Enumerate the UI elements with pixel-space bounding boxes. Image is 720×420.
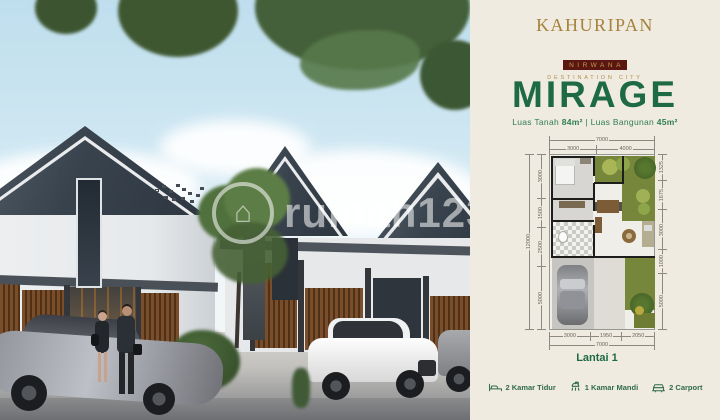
floor-plan: 7000 30004000 12000 3000150025005000 132…	[514, 136, 680, 376]
feature-label: 1 Kamar Mandi	[585, 383, 638, 392]
birds	[156, 190, 158, 191]
product-title: MIRAGE	[470, 74, 720, 116]
white-car	[300, 318, 450, 410]
feature-bedrooms: 2 Kamar Tidur	[488, 381, 556, 393]
car-windshield	[560, 279, 585, 289]
bed-icon	[488, 382, 503, 393]
floor-label: Lantai 1	[514, 352, 680, 364]
dining-table	[597, 200, 619, 213]
plan-dim-bottom-total: 7000	[549, 341, 655, 350]
plan-dim-top-segments: 30004000	[549, 145, 655, 154]
plan-dim-left-segments: 3000150025005000	[537, 154, 546, 330]
feature-label: 2 Kamar Tidur	[506, 383, 556, 392]
watermark: ⌂ rumah123	[212, 182, 470, 244]
wardrobe	[580, 158, 591, 164]
rumah123-logo-icon: ⌂	[212, 182, 274, 244]
feature-label: 2 Carport	[669, 383, 702, 392]
round-table	[622, 229, 636, 243]
watermark-text: rumah123	[284, 189, 470, 237]
property-render-image: ⌂ rumah123	[0, 0, 470, 420]
console-table	[595, 217, 602, 233]
car-icon	[651, 382, 666, 393]
product-specs: Luas Tanah 84m² | Luas Bangunan 45m²	[470, 117, 720, 127]
car-roof	[560, 291, 585, 309]
sink	[644, 225, 652, 231]
grass-patch	[634, 313, 655, 328]
desk	[559, 201, 585, 208]
specs-divider: |	[585, 117, 588, 127]
brochure: ⌂ rumah123 KAHURIPAN NIRWANA DESTINATION…	[0, 0, 720, 420]
building-label: Luas Bangunan	[591, 117, 654, 127]
chair	[619, 202, 622, 211]
palm-tree	[634, 157, 656, 179]
developer-logo: KAHURIPAN NIRWANA DESTINATION CITY	[470, 15, 720, 81]
brand-subname: NIRWANA	[563, 60, 627, 70]
feature-bathrooms: 1 Kamar Mandi	[569, 381, 638, 393]
bush	[636, 189, 650, 203]
plan-dim-left-total: 12000	[525, 154, 534, 330]
toilet	[558, 231, 568, 243]
house-1-roof	[0, 126, 215, 222]
yellow-bush	[635, 306, 644, 315]
building-value: 45m²	[657, 117, 678, 127]
bed-pillow	[555, 159, 575, 166]
land-label: Luas Tanah	[512, 117, 559, 127]
bush	[638, 203, 650, 215]
plant	[292, 368, 310, 408]
house-1-gable-window	[76, 178, 102, 288]
info-panel: KAHURIPAN NIRWANA DESTINATION CITY MIRAG…	[470, 0, 720, 420]
land-value: 84m²	[562, 117, 583, 127]
person-man	[113, 306, 141, 400]
plan-dim-top-total: 7000	[549, 136, 655, 145]
brand-name: KAHURIPAN	[470, 15, 720, 36]
gray-car-partial	[438, 322, 470, 398]
walkway	[594, 258, 625, 329]
shower-icon	[569, 381, 582, 393]
feature-carport: 2 Carport	[651, 381, 702, 393]
floor-plan-canvas	[549, 154, 655, 330]
plan-dim-bottom-segments: 300019502050	[549, 332, 655, 341]
features-row: 2 Kamar Tidur 1 Kamar Mandi 2 Carport	[470, 381, 720, 393]
plan-dim-right-segments: 13251675300010005000	[658, 154, 667, 330]
